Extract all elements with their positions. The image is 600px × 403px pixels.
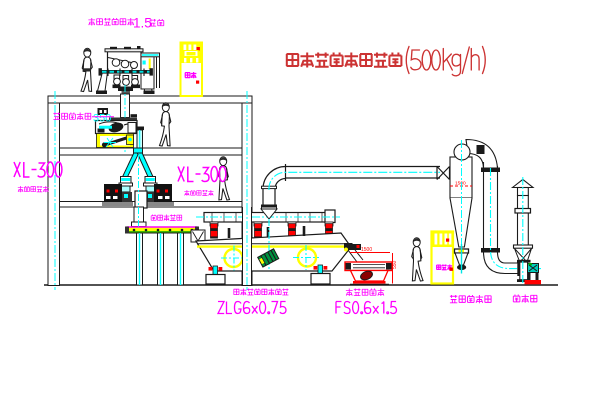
svg-text:350: 350 xyxy=(93,113,111,125)
svg-text:1.5: 1.5 xyxy=(133,16,152,31)
svg-text:1500: 1500 xyxy=(455,181,466,187)
svg-text:1500: 1500 xyxy=(361,247,372,253)
svg-text:550: 550 xyxy=(392,260,398,269)
